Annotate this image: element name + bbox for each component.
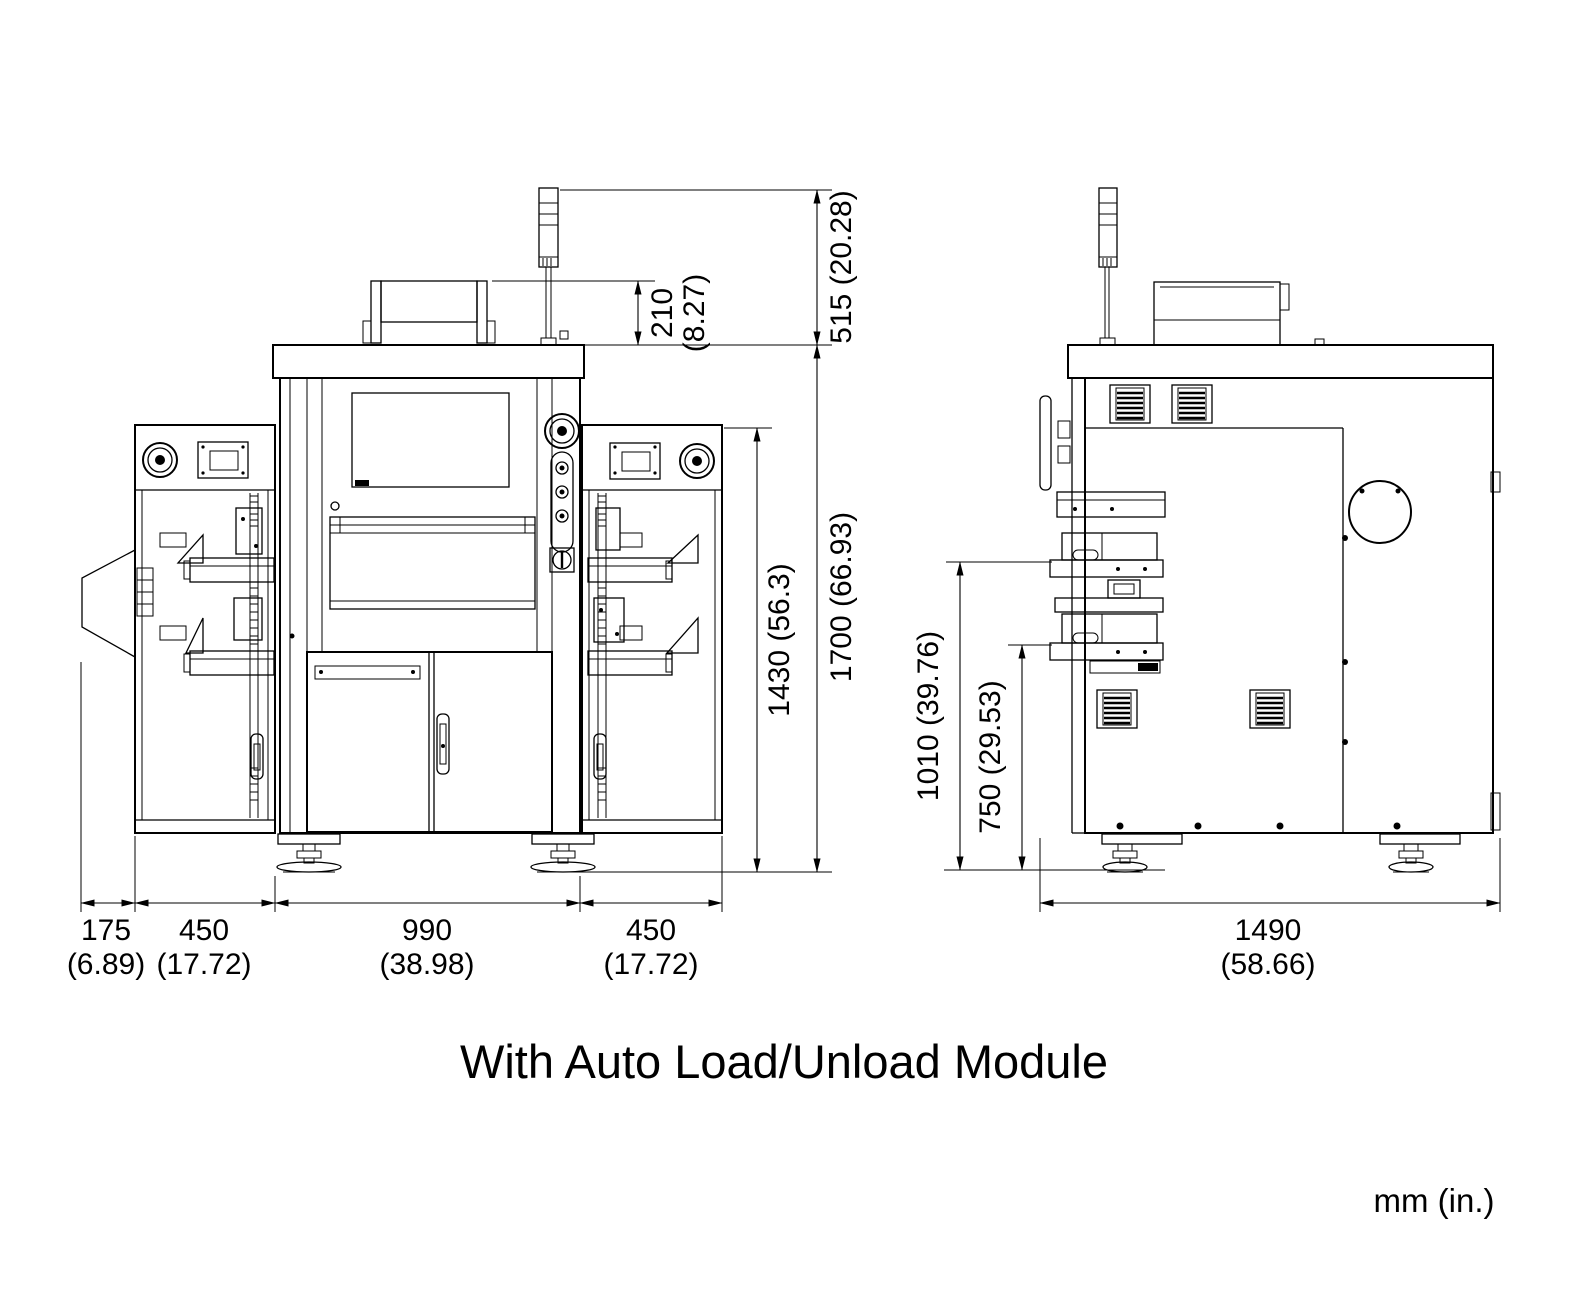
side-body [1040,339,1500,833]
front-right-foot [531,834,595,872]
dim-left-module-width-mm: 450 [179,914,229,947]
front-right-load-module [582,425,722,833]
front-signal-tower-icon [539,188,568,345]
dim-upper-conveyor-height-label: 1010 (39.76) [912,631,945,801]
side-top-box [1154,282,1289,345]
front-conveyor-slot [330,517,535,609]
vent-grille-top-right [1172,385,1212,423]
front-view [82,188,722,872]
left-module-upper-tray [160,533,274,582]
right-module-lower-tray [588,618,698,675]
front-touchscreen [352,393,509,487]
front-indicator-button [331,502,339,510]
dim-total-height-label: 1700 (66.93) [825,512,858,682]
left-module-lower-tray [160,618,274,675]
dimension-drawing: 210 (8.27) 515 (20.28) 1430 (56.3) 1700 … [0,0,1576,1301]
right-module-upper-tray [588,533,698,582]
side-signal-tower-icon [1099,188,1117,345]
drawing-title: With Auto Load/Unload Module [460,1035,1108,1088]
front-lower-doors [307,652,552,832]
dim-machine-depth-mm: 1490 [1235,914,1302,947]
left-module-door-handle-icon [251,734,263,779]
dimension-annotations: 210 (8.27) 515 (20.28) 1430 (56.3) 1700 … [67,190,1500,981]
front-left-load-module [135,425,275,833]
front-top-box [363,281,495,343]
side-conveyor-trays [1050,492,1165,673]
dim-cabinet-width-mm: 990 [402,914,452,947]
dim-chute-width-mm: 175 [81,914,131,947]
dim-cabinet-width-in: (38.98) [379,948,474,981]
side-right-foot [1380,834,1460,872]
right-module-display [610,443,660,479]
right-module-door-handle-icon [594,734,606,779]
dim-top-box-height-in: (8.27) [678,274,711,352]
right-module-rail-rungs [598,496,606,800]
dim-tower-height-label: 515 (20.28) [825,190,858,343]
vent-grille-bottom-left [1097,690,1137,728]
vent-grille-top-left [1110,385,1150,423]
dim-right-module-width-in: (17.72) [603,948,698,981]
front-control-buttons [545,414,579,572]
dim-right-module-width-mm: 450 [626,914,676,947]
dim-machine-depth-in: (58.66) [1220,948,1315,981]
side-base-bolts [1117,823,1401,830]
dim-left-module-width-in: (17.72) [156,948,251,981]
left-module-display [198,442,248,478]
front-left-foot [277,834,341,872]
dim-chute-width-in: (6.89) [67,948,145,981]
dim-module-height-label: 1430 (56.3) [763,563,796,716]
units-label: mm (in.) [1374,1182,1495,1219]
left-module-clamp [137,568,153,616]
drawing-page: 210 (8.27) 515 (20.28) 1430 (56.3) 1700 … [0,0,1576,1301]
dim-top-box-height-mm: 210 [646,288,679,338]
side-view [1040,188,1500,872]
door-handle-icon [437,714,449,774]
front-left-chute [82,550,135,657]
key-switch-icon [550,548,574,572]
side-fan-port [1349,481,1411,543]
side-left-foot [1102,834,1182,872]
vent-grille-bottom-right [1250,690,1290,728]
dim-lower-conveyor-height-label: 750 (29.53) [974,680,1007,833]
